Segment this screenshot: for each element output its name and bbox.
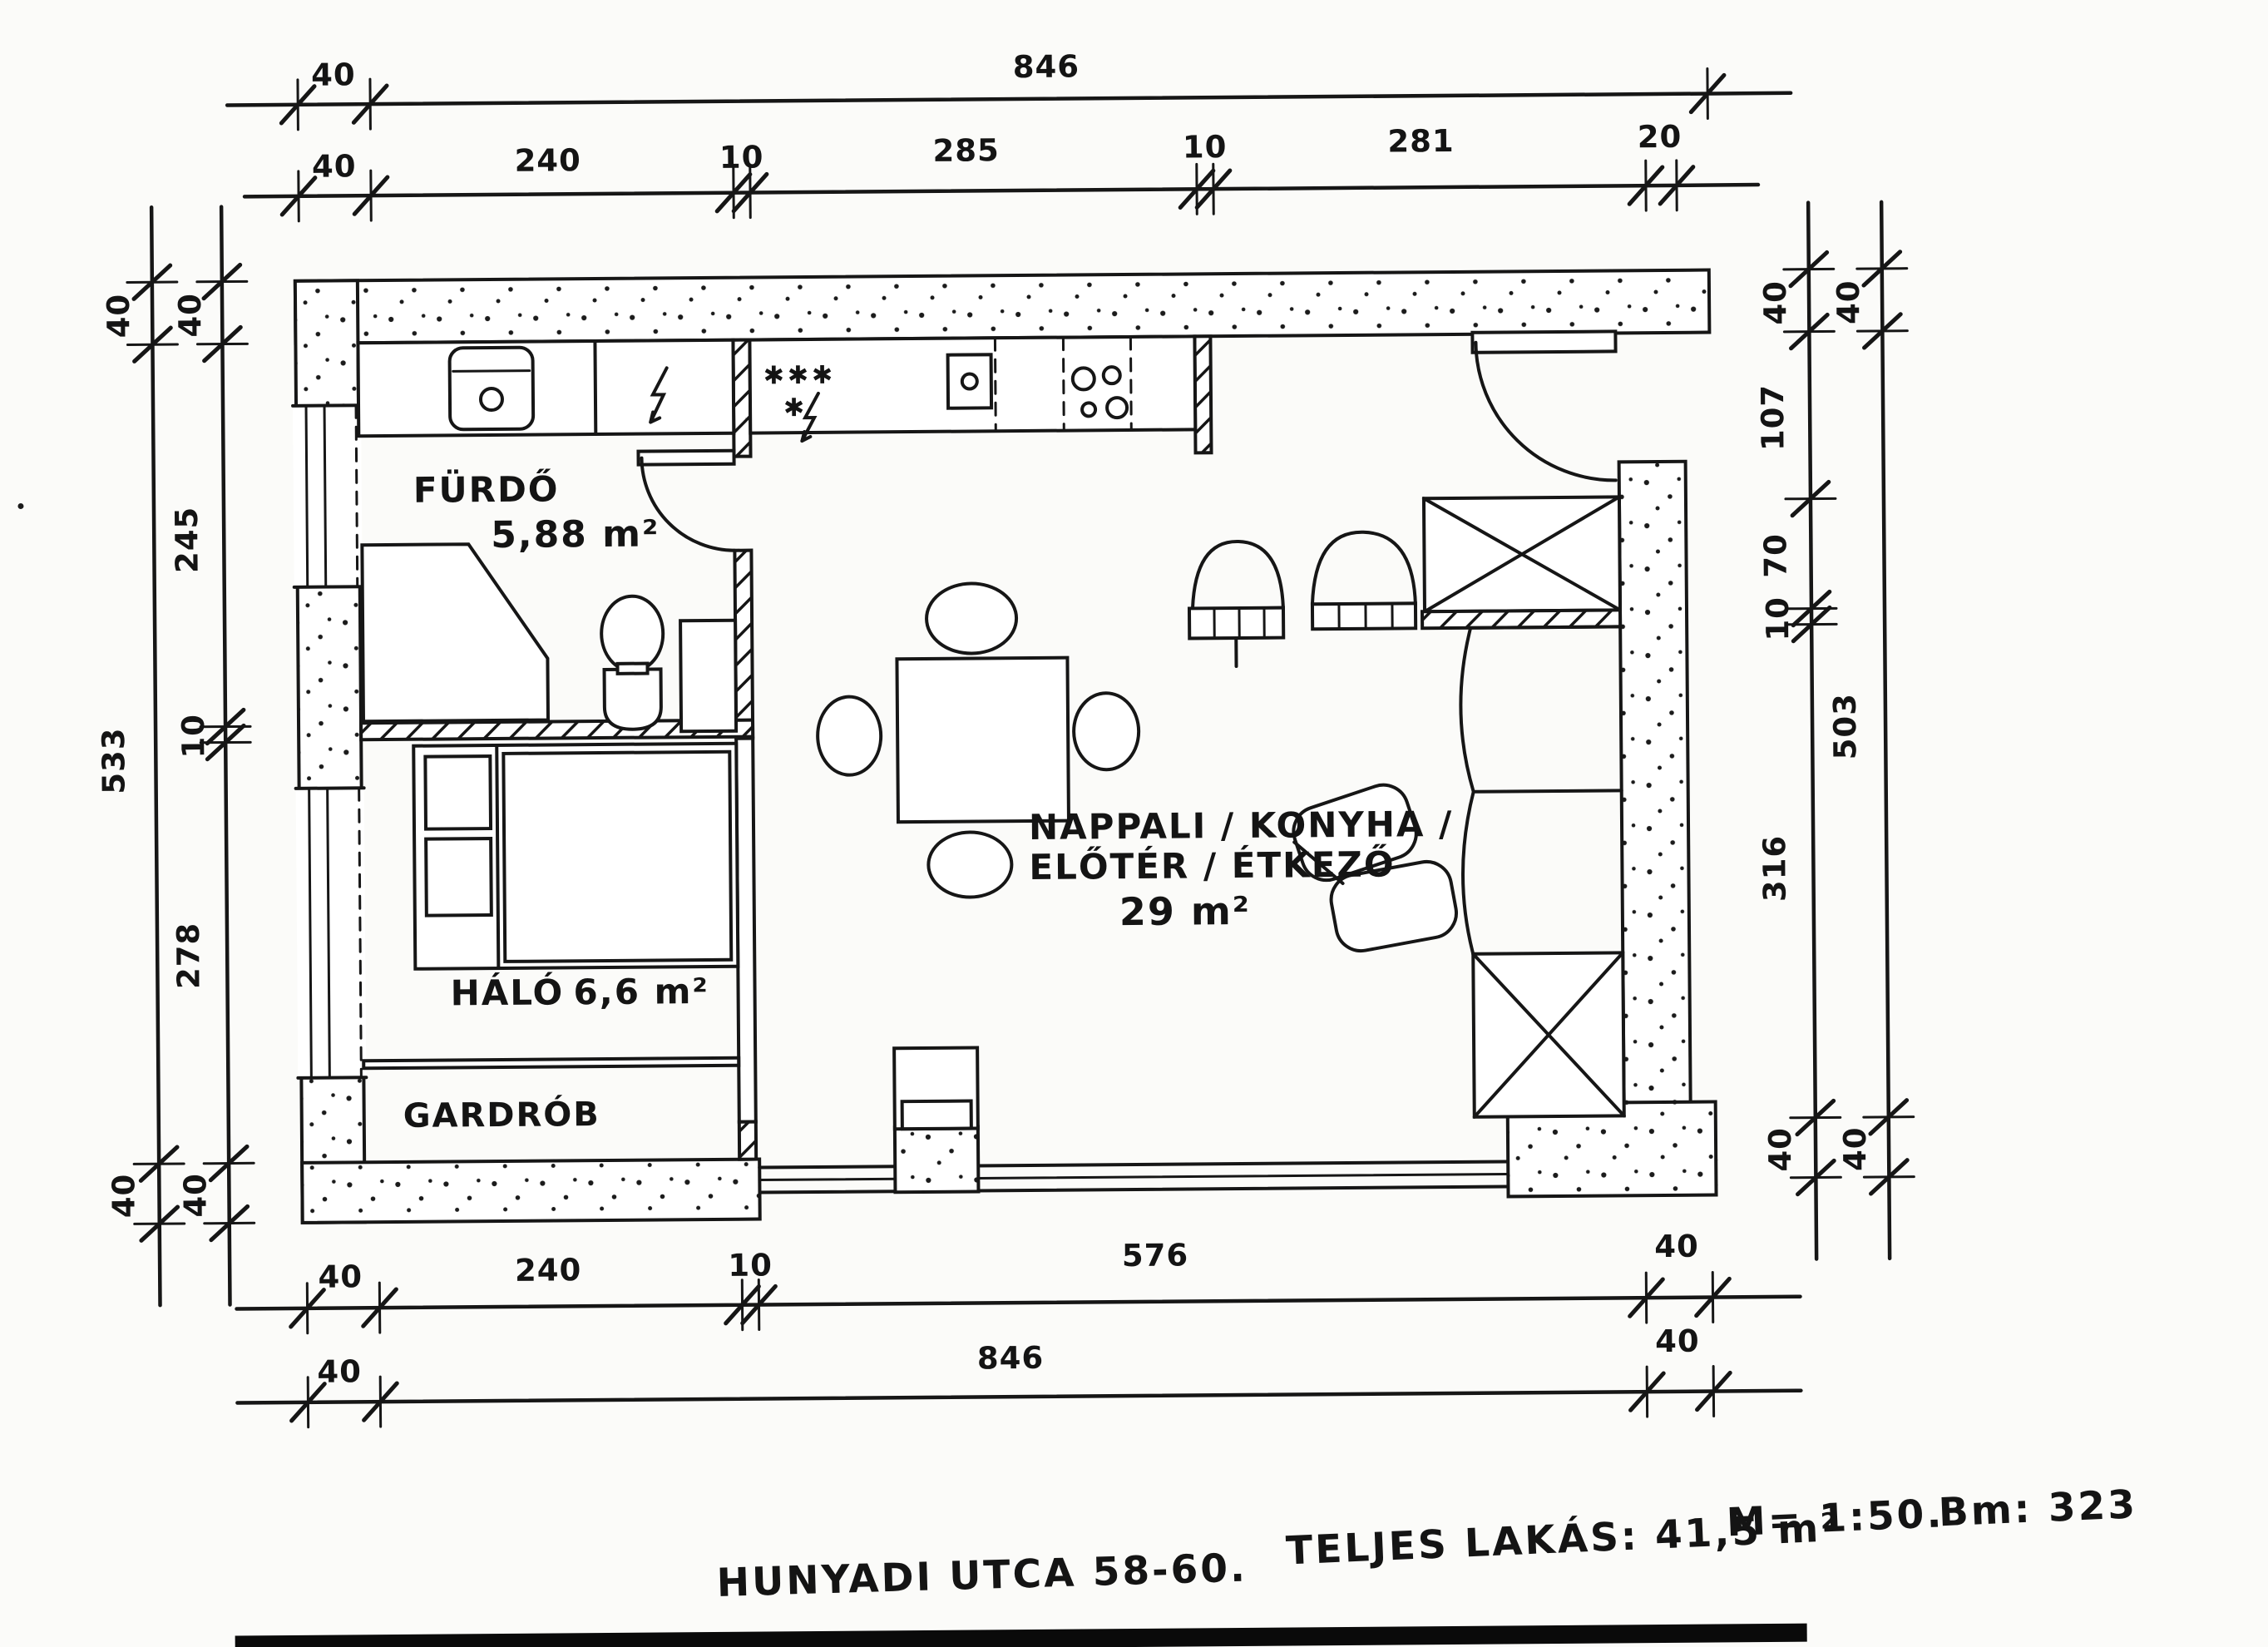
window-opening (293, 405, 363, 587)
sofa (1460, 626, 1623, 953)
dim-line (237, 1391, 1801, 1403)
dim-label: 846 (1013, 48, 1080, 85)
chair (928, 832, 1012, 898)
dim-line (1808, 203, 1816, 1259)
bathroom: FÜRDŐ 5,88 m² (358, 340, 736, 734)
scale-caption: M= 1:50. (1726, 1491, 1944, 1546)
armchair (1188, 542, 1283, 667)
dim-label: 10 (719, 139, 764, 175)
dim-label: 846 (977, 1340, 1045, 1377)
dim-label: 533 (96, 727, 132, 794)
dim-label: 70 (1757, 533, 1793, 578)
dim-label: 40 (177, 1173, 213, 1218)
drawing: FÜRDŐ 5,88 m² ✱✱✱ ✱ (14, 41, 2139, 1647)
toilet-base (605, 669, 662, 730)
living-label-line1: NAPPALI / KONYHA / (1029, 804, 1454, 848)
partition-stub-bottom (739, 1122, 756, 1160)
balcony-step (894, 1047, 978, 1129)
dim-label: 503 (1827, 693, 1864, 760)
pillow (426, 838, 492, 916)
dim-line (227, 93, 1791, 106)
dim-label: 40 (312, 148, 357, 184)
bathroom-label: FÜRDŐ (413, 467, 560, 510)
chair (926, 583, 1017, 654)
bathroom-area: 5,88 m² (491, 512, 660, 556)
burner (1073, 368, 1094, 389)
shower-corner (362, 544, 548, 722)
window-opening (296, 788, 367, 1078)
dim-line (245, 185, 1758, 196)
dim-label: 40 (101, 294, 136, 339)
dim-label: 20 (1638, 119, 1682, 155)
dim-label: 40 (1762, 1127, 1798, 1172)
entry-door (1472, 331, 1616, 481)
scanned-floor-plan-page: FÜRDŐ 5,88 m² ✱✱✱ ✱ (0, 0, 2268, 1647)
partition-stub-counter-end (1194, 336, 1211, 453)
window-jamb (294, 586, 363, 587)
scan-edge-bar (235, 1624, 1807, 1647)
toilet-icon (601, 596, 664, 671)
sofa-edge (1470, 626, 1620, 627)
dim-label: 240 (515, 1252, 582, 1288)
window-bathroom (293, 405, 363, 587)
dim-label: 40 (1655, 1323, 1700, 1359)
dim-label: 10 (175, 714, 211, 759)
floor-plan-svg: FÜRDŐ 5,88 m² ✱✱✱ ✱ (0, 0, 2268, 1647)
dim-label: 281 (1387, 123, 1455, 160)
sofa-cushion-divider (1474, 790, 1622, 791)
dim-label: 278 (170, 922, 207, 990)
armchair (1312, 532, 1416, 629)
scan-speck (17, 503, 23, 509)
wall-bottom-left (302, 1160, 760, 1223)
dim-label: 10 (1760, 596, 1796, 641)
wall-right (1619, 462, 1691, 1111)
dim-label: 40 (318, 1259, 363, 1294)
dim-label: 40 (1837, 1126, 1873, 1171)
washing-machine-door (481, 388, 502, 410)
bed-headboard (497, 745, 498, 968)
burner (1082, 403, 1095, 416)
step-inner (902, 1101, 971, 1130)
dim-top-overall (227, 68, 1791, 131)
window-glazing-line (324, 406, 326, 587)
dim-label: 40 (1654, 1229, 1699, 1264)
symbol-stars: ✱✱✱ (763, 361, 837, 391)
dim-bottom-detail (236, 1272, 1800, 1334)
bedroom-label: HÁLÓ (450, 971, 564, 1013)
chair (1074, 693, 1139, 770)
dim-line (221, 207, 230, 1305)
pillow (425, 756, 491, 829)
toilet-seat-joint (617, 664, 647, 674)
armchair-seat (1189, 608, 1283, 639)
dim-label: 245 (169, 507, 205, 574)
dim-line (237, 1297, 1801, 1309)
window-glazing-line (306, 406, 308, 587)
dim-label: 40 (106, 1174, 141, 1219)
bedroom-area: 6,6 m² (573, 971, 709, 1012)
dim-label: 107 (1755, 384, 1791, 452)
dim-top-detail (245, 160, 1758, 221)
window-jamb (296, 788, 364, 789)
bedroom: HÁLÓ 6,6 m² GARDRÓB (400, 744, 739, 1135)
kitchen: ✱✱✱ ✱ (749, 336, 1195, 441)
symbol-star: ✱ (783, 393, 804, 423)
pier-center (895, 1126, 979, 1192)
window-jamb (298, 1077, 366, 1078)
armchair-back (1312, 532, 1416, 606)
dim-label: 40 (1831, 279, 1866, 324)
dim-line (151, 207, 160, 1305)
living-room: NAPPALI / KONYHA / ELŐTÉR / ÉTKEZŐ 29 m² (816, 497, 1624, 1130)
washing-machine-panel (453, 371, 530, 372)
entry-door-leaf (1472, 331, 1615, 352)
dim-right-outer (1856, 202, 1915, 1259)
dim-label: 40 (317, 1353, 362, 1389)
address-caption: HUNYADI UTCA 58-60. (716, 1546, 1248, 1606)
window-jamb (293, 405, 361, 406)
bathroom-cabinet (680, 621, 736, 732)
window-bedroom (296, 788, 367, 1078)
storage-box (1473, 952, 1624, 1116)
dining-table (897, 658, 1069, 823)
counter-divider (595, 341, 595, 434)
wardrobe-divider (363, 1058, 739, 1069)
dim-label: 10 (728, 1247, 773, 1283)
entry-door-arc (1475, 341, 1615, 481)
bm-caption: Bm: 323 (1938, 1481, 2138, 1536)
armchair-seat (1312, 603, 1416, 629)
wardrobe-cabinet (1424, 497, 1620, 611)
living-label-line2: ELŐTÉR / ÉTKEZŐ (1029, 843, 1396, 888)
partition-stub-kitchen (733, 340, 750, 457)
dim-label: 40 (1757, 280, 1793, 325)
dim-label: 10 (1183, 129, 1228, 165)
dim-label: 240 (514, 142, 581, 179)
dim-label: 285 (932, 132, 1000, 169)
wardrobe-label: GARDRÓB (403, 1094, 600, 1135)
bathroom-counter (358, 340, 734, 437)
living-area: 29 m² (1119, 888, 1252, 934)
burner (1107, 398, 1127, 418)
dim-label: 40 (311, 57, 356, 92)
dim-label: 40 (172, 293, 208, 338)
bathroom-door-leaf (638, 451, 734, 465)
chair (818, 696, 882, 775)
dim-label: 316 (1757, 835, 1793, 903)
burner (1104, 367, 1120, 383)
mattress (503, 752, 731, 962)
dim-line (1881, 202, 1890, 1259)
dim-label: 576 (1122, 1237, 1189, 1274)
sink-drain (962, 373, 977, 388)
armchair-back (1192, 542, 1283, 611)
